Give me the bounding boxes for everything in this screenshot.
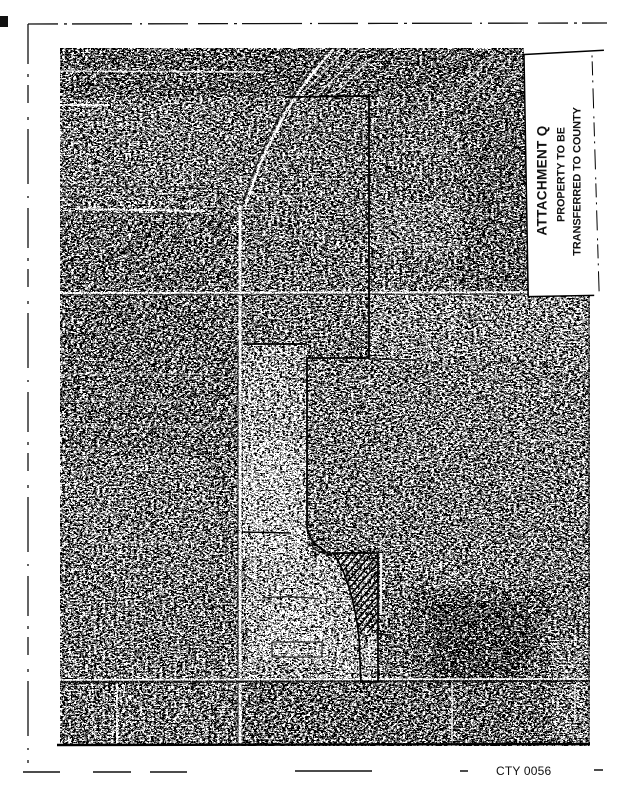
svg-text:ATTACHMENT Q: ATTACHMENT Q — [535, 125, 550, 235]
svg-text:PROPERTY TO BE: PROPERTY TO BE — [556, 127, 568, 222]
svg-text:CTY 0056: CTY 0056 — [496, 764, 552, 778]
svg-text:TRANSFERRED TO COUNTY: TRANSFERRED TO COUNTY — [572, 106, 584, 255]
